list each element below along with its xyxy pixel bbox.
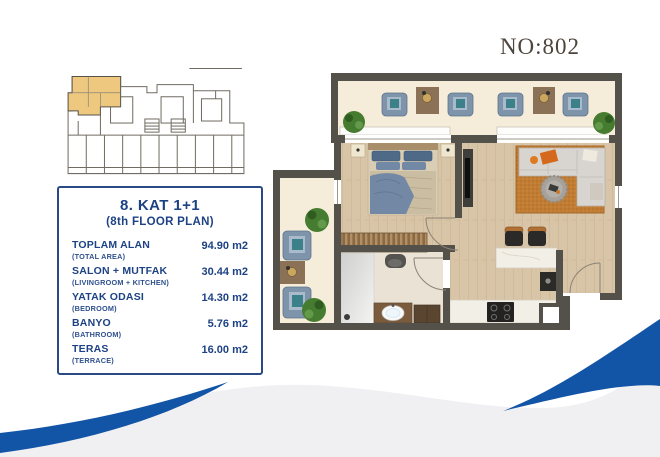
shower-drain (344, 314, 350, 320)
building-key-plan (60, 62, 252, 178)
area-sublabel: (LIVINGROOM + KITCHEN) (72, 278, 169, 287)
area-row-total: TOPLAM ALAN (TOTAL AREA) 94.90 m2 (72, 239, 248, 261)
area-label: TERAS (72, 343, 114, 355)
area-row-bedroom: YATAK ODASI (BEDROOM) 14.30 m2 (72, 291, 248, 313)
floorplan-brochure-page: NO:802 8. KAT 1+1 (8th FLOOR PLAN) TOPLA… (0, 0, 660, 457)
area-value: 14.30 m2 (202, 291, 248, 313)
area-value: 30.44 m2 (202, 265, 248, 287)
area-label: TOPLAM ALAN (72, 239, 150, 251)
floor-title: 8. KAT 1+1 (72, 197, 248, 214)
white-pillow (582, 149, 598, 162)
apartment-floor-plan (268, 58, 628, 336)
area-value: 5.76 m2 (208, 317, 248, 339)
area-sublabel: (BEDROOM) (72, 304, 144, 313)
unit-number-heading: NO:802 (455, 34, 625, 60)
area-row-bathroom: BANYO (BATHROOM) 5.76 m2 (72, 317, 248, 339)
area-table: TOPLAM ALAN (TOTAL AREA) 94.90 m2 SALON … (72, 239, 248, 365)
island-counter (496, 248, 557, 268)
area-row-livingroom: SALON + MUTFAK (LIVINGROOM + KITCHEN) 30… (72, 265, 248, 287)
floor-subtitle: (8th FLOOR PLAN) (72, 216, 248, 228)
cooktop (487, 302, 514, 322)
shower-floor (341, 253, 374, 324)
area-value: 16.00 m2 (202, 343, 248, 365)
blue-swoosh-left (0, 382, 228, 453)
area-label: SALON + MUTFAK (72, 265, 169, 277)
area-sublabel: (TERRACE) (72, 356, 114, 365)
area-row-terrace: TERAS (TERRACE) 16.00 m2 (72, 343, 248, 365)
highlighted-unit-802 (68, 77, 121, 115)
area-sublabel: (BATHROOM) (72, 330, 121, 339)
area-label: BANYO (72, 317, 121, 329)
area-info-box: 8. KAT 1+1 (8th FLOOR PLAN) TOPLAM ALAN … (57, 186, 263, 375)
double-bed (368, 143, 438, 215)
throw-blanket (590, 183, 603, 200)
bar-stool (505, 227, 523, 246)
area-value: 94.90 m2 (202, 239, 248, 261)
area-sublabel: (TOTAL AREA) (72, 252, 150, 261)
bar-stool (528, 227, 546, 246)
area-label: YATAK ODASI (72, 291, 144, 303)
